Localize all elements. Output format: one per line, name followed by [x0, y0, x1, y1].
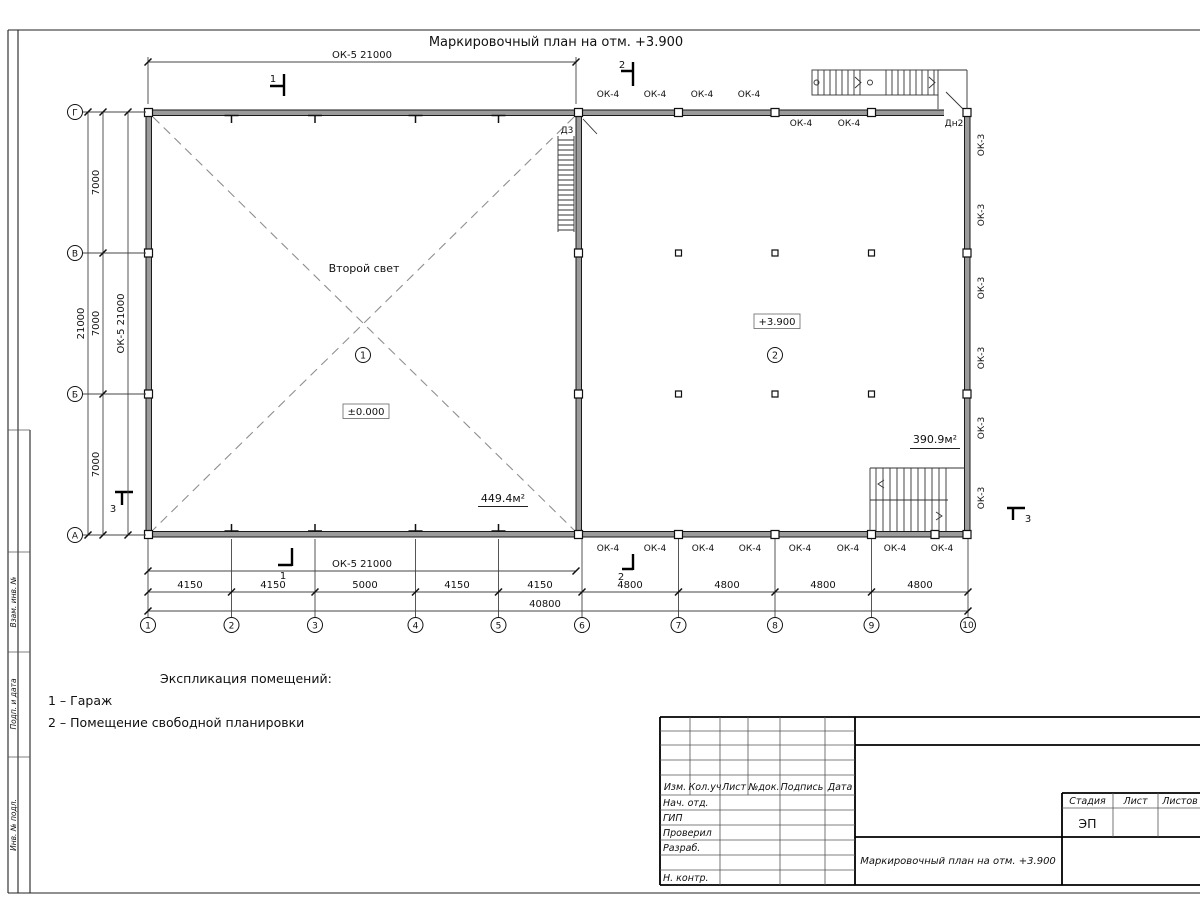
left-wall [146, 110, 152, 537]
window-mark-ok4: ОК-4 [597, 544, 620, 554]
window-mark-ok3: ОК-3 [977, 134, 987, 156]
room-2-number: 2 [772, 351, 778, 362]
axis-number: 8 [772, 622, 778, 632]
dim-left-span: 7000 [91, 452, 102, 477]
tb-col-izm: Изм. [664, 782, 686, 793]
page-title: Маркировочный план на отм. +3.900 [429, 35, 683, 50]
window-mark-ok3: ОК-3 [977, 347, 987, 369]
level-zero-value: ±0.000 [347, 407, 384, 418]
axis-number: 7 [676, 622, 682, 632]
door-mark-dn2: Дн2 [945, 119, 964, 129]
axis-number: 4 [413, 622, 419, 632]
interior-wall [576, 110, 582, 537]
dimensions-left: 7000 7000 7000 21000 ОК-5 21000 Г В Б А [68, 105, 147, 543]
internal-stair-bottom [870, 468, 965, 531]
tb-row-razrab: Разраб. [663, 843, 700, 854]
tb-doc-name: Маркировочный план на отм. +3.900 [860, 856, 1056, 867]
window-mark-ok4: ОК-4 [790, 119, 813, 129]
door-mark-d3: Д3 [561, 126, 574, 136]
window-mark-ok3: ОК-3 [977, 204, 987, 226]
drawing-sheet: Взам. инв. № Подп. и дата Инв. № подл. М… [0, 0, 1200, 900]
axis-number: 2 [229, 622, 235, 632]
dim-bay: 4800 [617, 580, 642, 591]
dim-bay: 4800 [907, 580, 932, 591]
door-dn2-leaf [946, 92, 964, 110]
dimensions-top: ОК-5 21000 [145, 50, 580, 104]
window-mark-ok4: ОК-4 [692, 544, 715, 554]
tb-col-koluch: Кол.уч [689, 782, 722, 793]
dim-bay: 4800 [714, 580, 739, 591]
legend-item-2: 2 – Помещение свободной планировки [48, 715, 304, 730]
tb-row-nkontr: Н. контр. [663, 873, 709, 884]
tb-row-gip: ГИП [663, 813, 683, 824]
legend-item-1: 1 – Гараж [48, 693, 112, 708]
dim-bay: 4150 [444, 580, 469, 591]
steel-column-symbols [225, 116, 506, 532]
tb-col-podpis: Подпись [781, 782, 824, 793]
axis-number: 9 [869, 622, 875, 632]
tb-stage-label: Стадия [1069, 796, 1106, 807]
right-wall [965, 110, 971, 537]
window-mark-ok3: ОК-3 [977, 487, 987, 509]
title-block: Изм. Кол.уч Лист №док. Подпись Дата Нач.… [660, 717, 1200, 885]
void-cross [153, 117, 574, 530]
tb-stage-value: ЭП [1078, 816, 1096, 831]
dim-bay: 5000 [352, 580, 377, 591]
tb-row-nach-otd: Нач. отд. [663, 798, 709, 809]
axis-number: 3 [312, 622, 318, 632]
garage-area-value: 449.4м² [481, 492, 525, 505]
window-mark-ok4: ОК-4 [597, 90, 620, 100]
external-stair-top [812, 70, 967, 109]
dim-left-span: 7000 [91, 170, 102, 195]
section-3-mark: 3 [1025, 514, 1031, 525]
room-annotations: Второй свет 1 ±0.000 449.4м² +3.900 2 39… [329, 262, 960, 507]
tb-col-data: Дата [827, 782, 853, 793]
window-mark-ok4: ОК-4 [644, 90, 667, 100]
tb-row-proveril: Проверил [663, 828, 712, 839]
axis-letter: Г [72, 109, 78, 119]
sheet-frame [8, 30, 1200, 893]
stamp-podp-label: Подп. и дата [9, 678, 18, 729]
window-mark-ok3: ОК-3 [977, 277, 987, 299]
room-1-number: 1 [360, 351, 366, 362]
window-mark-ok4: ОК-4 [789, 544, 812, 554]
stamp-inv-label: Инв. № подл. [9, 799, 18, 851]
section-marks: 1 1 2 2 3 3 [110, 60, 1031, 583]
free-area-value: 390.9м² [913, 433, 957, 446]
axis-number: 1 [145, 622, 151, 632]
second-light-label: Второй свет [329, 262, 400, 275]
tb-sheet-label: Лист [1122, 796, 1148, 807]
axis-letter: А [72, 532, 79, 542]
stamp-vzam-label: Взам. инв. № [9, 576, 18, 627]
legend: Экспликация помещений: 1 – Гараж 2 – Пом… [48, 671, 332, 730]
dim-left-window: ОК-5 21000 [116, 294, 127, 354]
window-mark-ok4: ОК-4 [644, 544, 667, 554]
dim-top-window: ОК-5 21000 [332, 50, 392, 61]
legend-title: Экспликация помещений: [160, 671, 332, 686]
dim-bay: 4150 [260, 580, 285, 591]
plan-svg: Взам. инв. № Подп. и дата Инв. № подл. М… [0, 0, 1200, 900]
axis-letter: Б [72, 391, 78, 401]
dim-bay: 4800 [810, 580, 835, 591]
tb-col-list: Лист [721, 782, 747, 793]
door-dn2-opening [944, 109, 964, 117]
tb-col-ndok: №док. [747, 782, 779, 793]
window-mark-ok4: ОК-4 [738, 90, 761, 100]
dim-left-total: 21000 [76, 308, 87, 340]
window-mark-ok3: ОК-3 [977, 417, 987, 439]
section-3-mark: 3 [110, 504, 116, 515]
window-mark-ok4: ОК-4 [931, 544, 954, 554]
ladder-d3 [558, 136, 574, 232]
axis-number: 6 [579, 622, 585, 632]
door-d3-leaf [583, 119, 597, 134]
bottom-wall [146, 532, 970, 538]
window-mark-ok4: ОК-4 [837, 544, 860, 554]
section-2-mark: 2 [619, 60, 625, 71]
top-wall [146, 110, 970, 116]
margin-stamp: Взам. инв. № Подп. и дата Инв. № подл. [9, 576, 18, 851]
dim-bay: 4150 [177, 580, 202, 591]
axis-number: 5 [496, 622, 502, 632]
axis-number: 10 [962, 621, 974, 631]
window-mark-ok4: ОК-4 [739, 544, 762, 554]
level-high-value: +3.900 [758, 317, 795, 328]
section-1-mark: 1 [270, 74, 276, 85]
dim-bottom-total: 40800 [529, 599, 561, 610]
window-mark-ok4: ОК-4 [838, 119, 861, 129]
dim-left-span: 7000 [91, 311, 102, 336]
window-mark-ok4: ОК-4 [691, 90, 714, 100]
window-mark-ok4: ОК-4 [884, 544, 907, 554]
dim-bay: 4150 [527, 580, 552, 591]
dim-bottom-window: ОК-5 21000 [332, 559, 392, 570]
tb-sheets-label: Листов [1161, 796, 1198, 807]
axis-letter: В [72, 250, 78, 260]
